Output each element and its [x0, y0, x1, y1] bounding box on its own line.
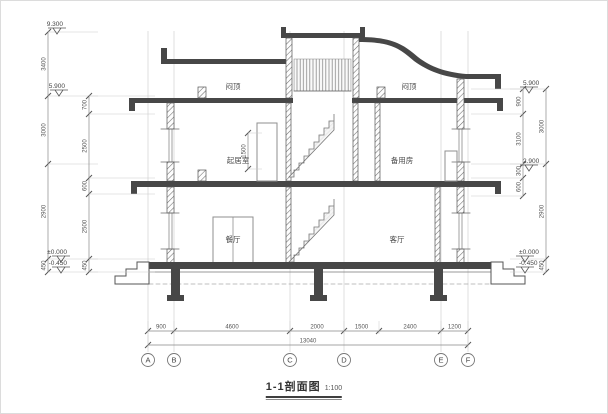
axis-label: C — [287, 356, 293, 365]
axis-bubble: A — [142, 354, 155, 367]
axis-bubble: B — [168, 354, 181, 367]
dim-label: 900 — [517, 96, 523, 107]
elevation-value: 5.900 — [523, 80, 540, 87]
attic-floor-slab — [129, 98, 293, 103]
room-label: 餐厅 — [226, 235, 241, 244]
title-scale: 1:100 — [325, 385, 343, 392]
elevation-value: ±0.000 — [519, 249, 539, 256]
dim-label: 13040 — [300, 339, 317, 345]
vertical-dimension-chain: 340030002900450 — [42, 29, 99, 275]
dim-label: 3000 — [42, 123, 48, 137]
elevation-value: 5.900 — [49, 83, 66, 90]
vertical-dimension-chain: 1500 — [242, 130, 263, 172]
title-underline-thin — [266, 399, 342, 400]
dim-label: 2500 — [83, 219, 89, 233]
dim-label: 3100 — [517, 132, 523, 146]
foundation-stub — [314, 269, 323, 297]
entry-steps-left — [115, 262, 149, 284]
dim-label: 600 — [517, 181, 523, 192]
curved-roof — [359, 37, 501, 79]
elevation-triangle-icon — [525, 87, 533, 93]
elevation-value: -0.450 — [49, 260, 68, 267]
horizontal-dimension-chain: 90046002000150024001200 — [145, 321, 471, 334]
drawing-title: 1-1剖面图1:100 — [266, 377, 342, 400]
dim-label: 3000 — [540, 119, 546, 133]
dim-label: 4600 — [225, 325, 239, 331]
dim-label: 2900 — [42, 204, 48, 218]
dim-label: 2500 — [83, 139, 89, 153]
dim-label: 450 — [83, 260, 89, 271]
niche — [445, 151, 457, 181]
elevation-value: 9.300 — [47, 21, 64, 28]
dim-label: 600 — [83, 180, 89, 191]
dim-label: 2400 — [403, 325, 417, 331]
foundation-stub — [434, 269, 443, 297]
dim-label: 450 — [42, 260, 48, 271]
stair-flight-lower — [289, 199, 334, 262]
second-floor-walls — [161, 79, 470, 181]
vertical-dimension-chain: 30002900450 — [510, 86, 549, 275]
elevation-marker: -0.450 — [49, 260, 70, 273]
elevation-marker: 5.900 — [49, 83, 68, 96]
stair-tower-louver — [294, 59, 351, 91]
column-stub — [198, 170, 206, 181]
dim-label: 700 — [83, 99, 89, 110]
door — [257, 123, 277, 181]
axis-label: D — [341, 356, 347, 365]
ground-foundation — [115, 262, 525, 301]
stair-tower-wall-left — [286, 38, 292, 98]
dim-label: 1200 — [448, 325, 462, 331]
horizontal-dimension-chain: 13040 — [145, 335, 471, 348]
elevation-value: ±0.000 — [47, 249, 67, 256]
axis-bubble: D — [338, 354, 351, 367]
elevation-triangle-icon — [53, 28, 61, 34]
stair-flight-upper — [289, 114, 334, 177]
stair-tower-wall-right — [353, 38, 359, 98]
roof-structure — [129, 27, 503, 111]
room-label: 备用房 — [391, 155, 414, 165]
dim-label: 2900 — [540, 204, 546, 218]
axis-bubble: F — [462, 354, 475, 367]
dim-label: 3400 — [42, 57, 48, 71]
elevation-triangle-icon — [525, 165, 533, 171]
axis-bubble: C — [284, 354, 297, 367]
dim-label: 1500 — [355, 325, 369, 331]
dim-label: 2000 — [310, 325, 324, 331]
elevation-value: -0.450 — [519, 260, 538, 267]
elevation-triangle-icon — [55, 90, 63, 96]
axis-label: B — [171, 356, 176, 365]
axis-label: E — [438, 356, 443, 365]
drawing-page: 3400300029004507002500600250045015009003… — [0, 0, 608, 414]
stairs — [289, 114, 334, 262]
title-text: 1-1剖面图 — [266, 381, 321, 393]
room-label: 闷顶 — [402, 81, 417, 91]
column-stub — [377, 87, 385, 98]
title-underline — [266, 396, 342, 398]
room-label: 起居室 — [227, 155, 250, 165]
doors — [213, 123, 457, 263]
room-label: 客厅 — [390, 234, 405, 244]
dim-label: 300 — [517, 165, 523, 176]
second-floor-slab — [131, 181, 501, 187]
axis-bubble: E — [435, 354, 448, 367]
elevation-marker: -0.450 — [516, 260, 538, 273]
axis-label: A — [145, 356, 150, 365]
room-label: 闷顶 — [226, 81, 241, 91]
elevation-value: 2.900 — [523, 158, 540, 165]
ground-floor-slab — [149, 262, 491, 269]
dim-label: 450 — [540, 260, 546, 271]
dim-label: 900 — [156, 325, 167, 331]
section-drawing: 3400300029004507002500600250045015009003… — [1, 1, 608, 414]
axis-label: F — [466, 356, 471, 365]
column-stub — [198, 87, 206, 98]
foundation-stub — [171, 269, 180, 297]
